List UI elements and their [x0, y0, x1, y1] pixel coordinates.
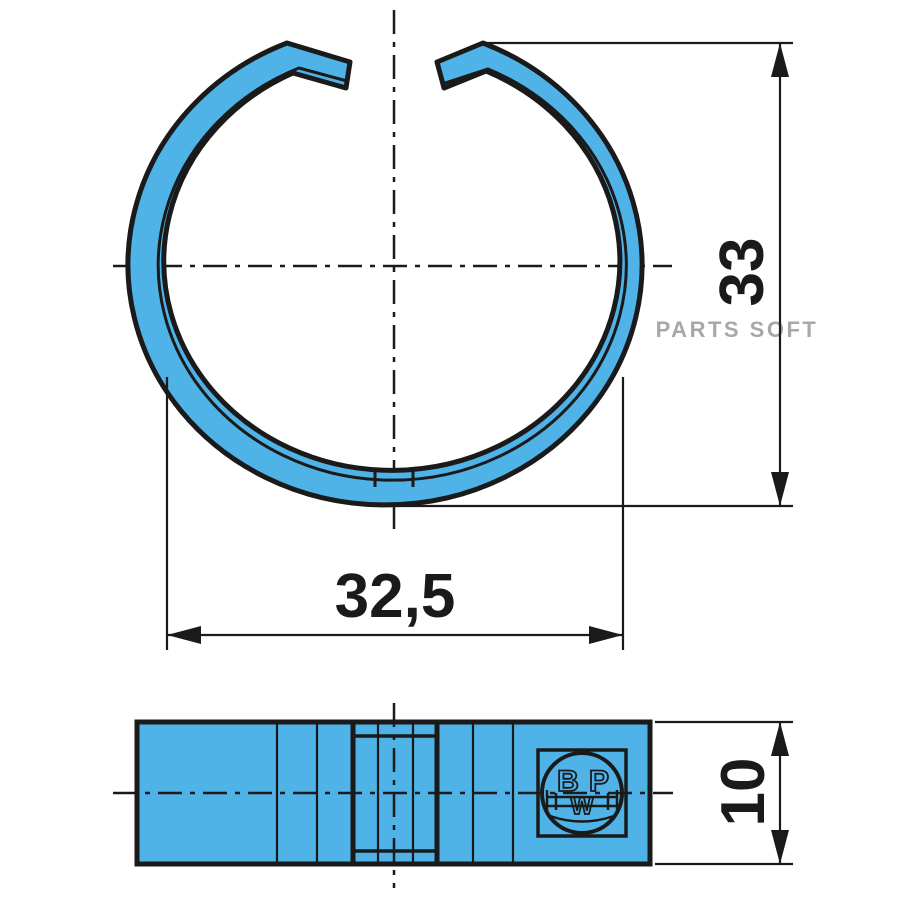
dim-33-arrow-up-icon: [771, 43, 789, 77]
dim-10-arrow-up-icon: [771, 722, 789, 756]
front-view: [113, 10, 672, 535]
watermark-text: PARTS SOFT: [656, 317, 819, 342]
side-view: B P W: [113, 703, 673, 888]
dimension-band-width: 10: [655, 722, 793, 864]
dim-33-arrow-down-icon: [771, 472, 789, 506]
bpw-logo-letter-w: W: [571, 793, 594, 820]
dim-10-label: 10: [709, 758, 778, 827]
dim-325-arrow-right-icon: [589, 626, 623, 644]
snap-ring-band: [128, 43, 642, 505]
dim-325-label: 32,5: [335, 562, 456, 631]
dim-33-label: 33: [708, 238, 777, 307]
snap-ring-technical-drawing: PARTS SOFT 33 32,5 B: [0, 0, 900, 900]
band-inner-edge-highlight: [158, 68, 626, 480]
dim-10-arrow-down-icon: [771, 830, 789, 864]
dim-325-arrow-left-icon: [167, 626, 201, 644]
technical-drawing-canvas: PARTS SOFT 33 32,5 B: [0, 0, 900, 900]
